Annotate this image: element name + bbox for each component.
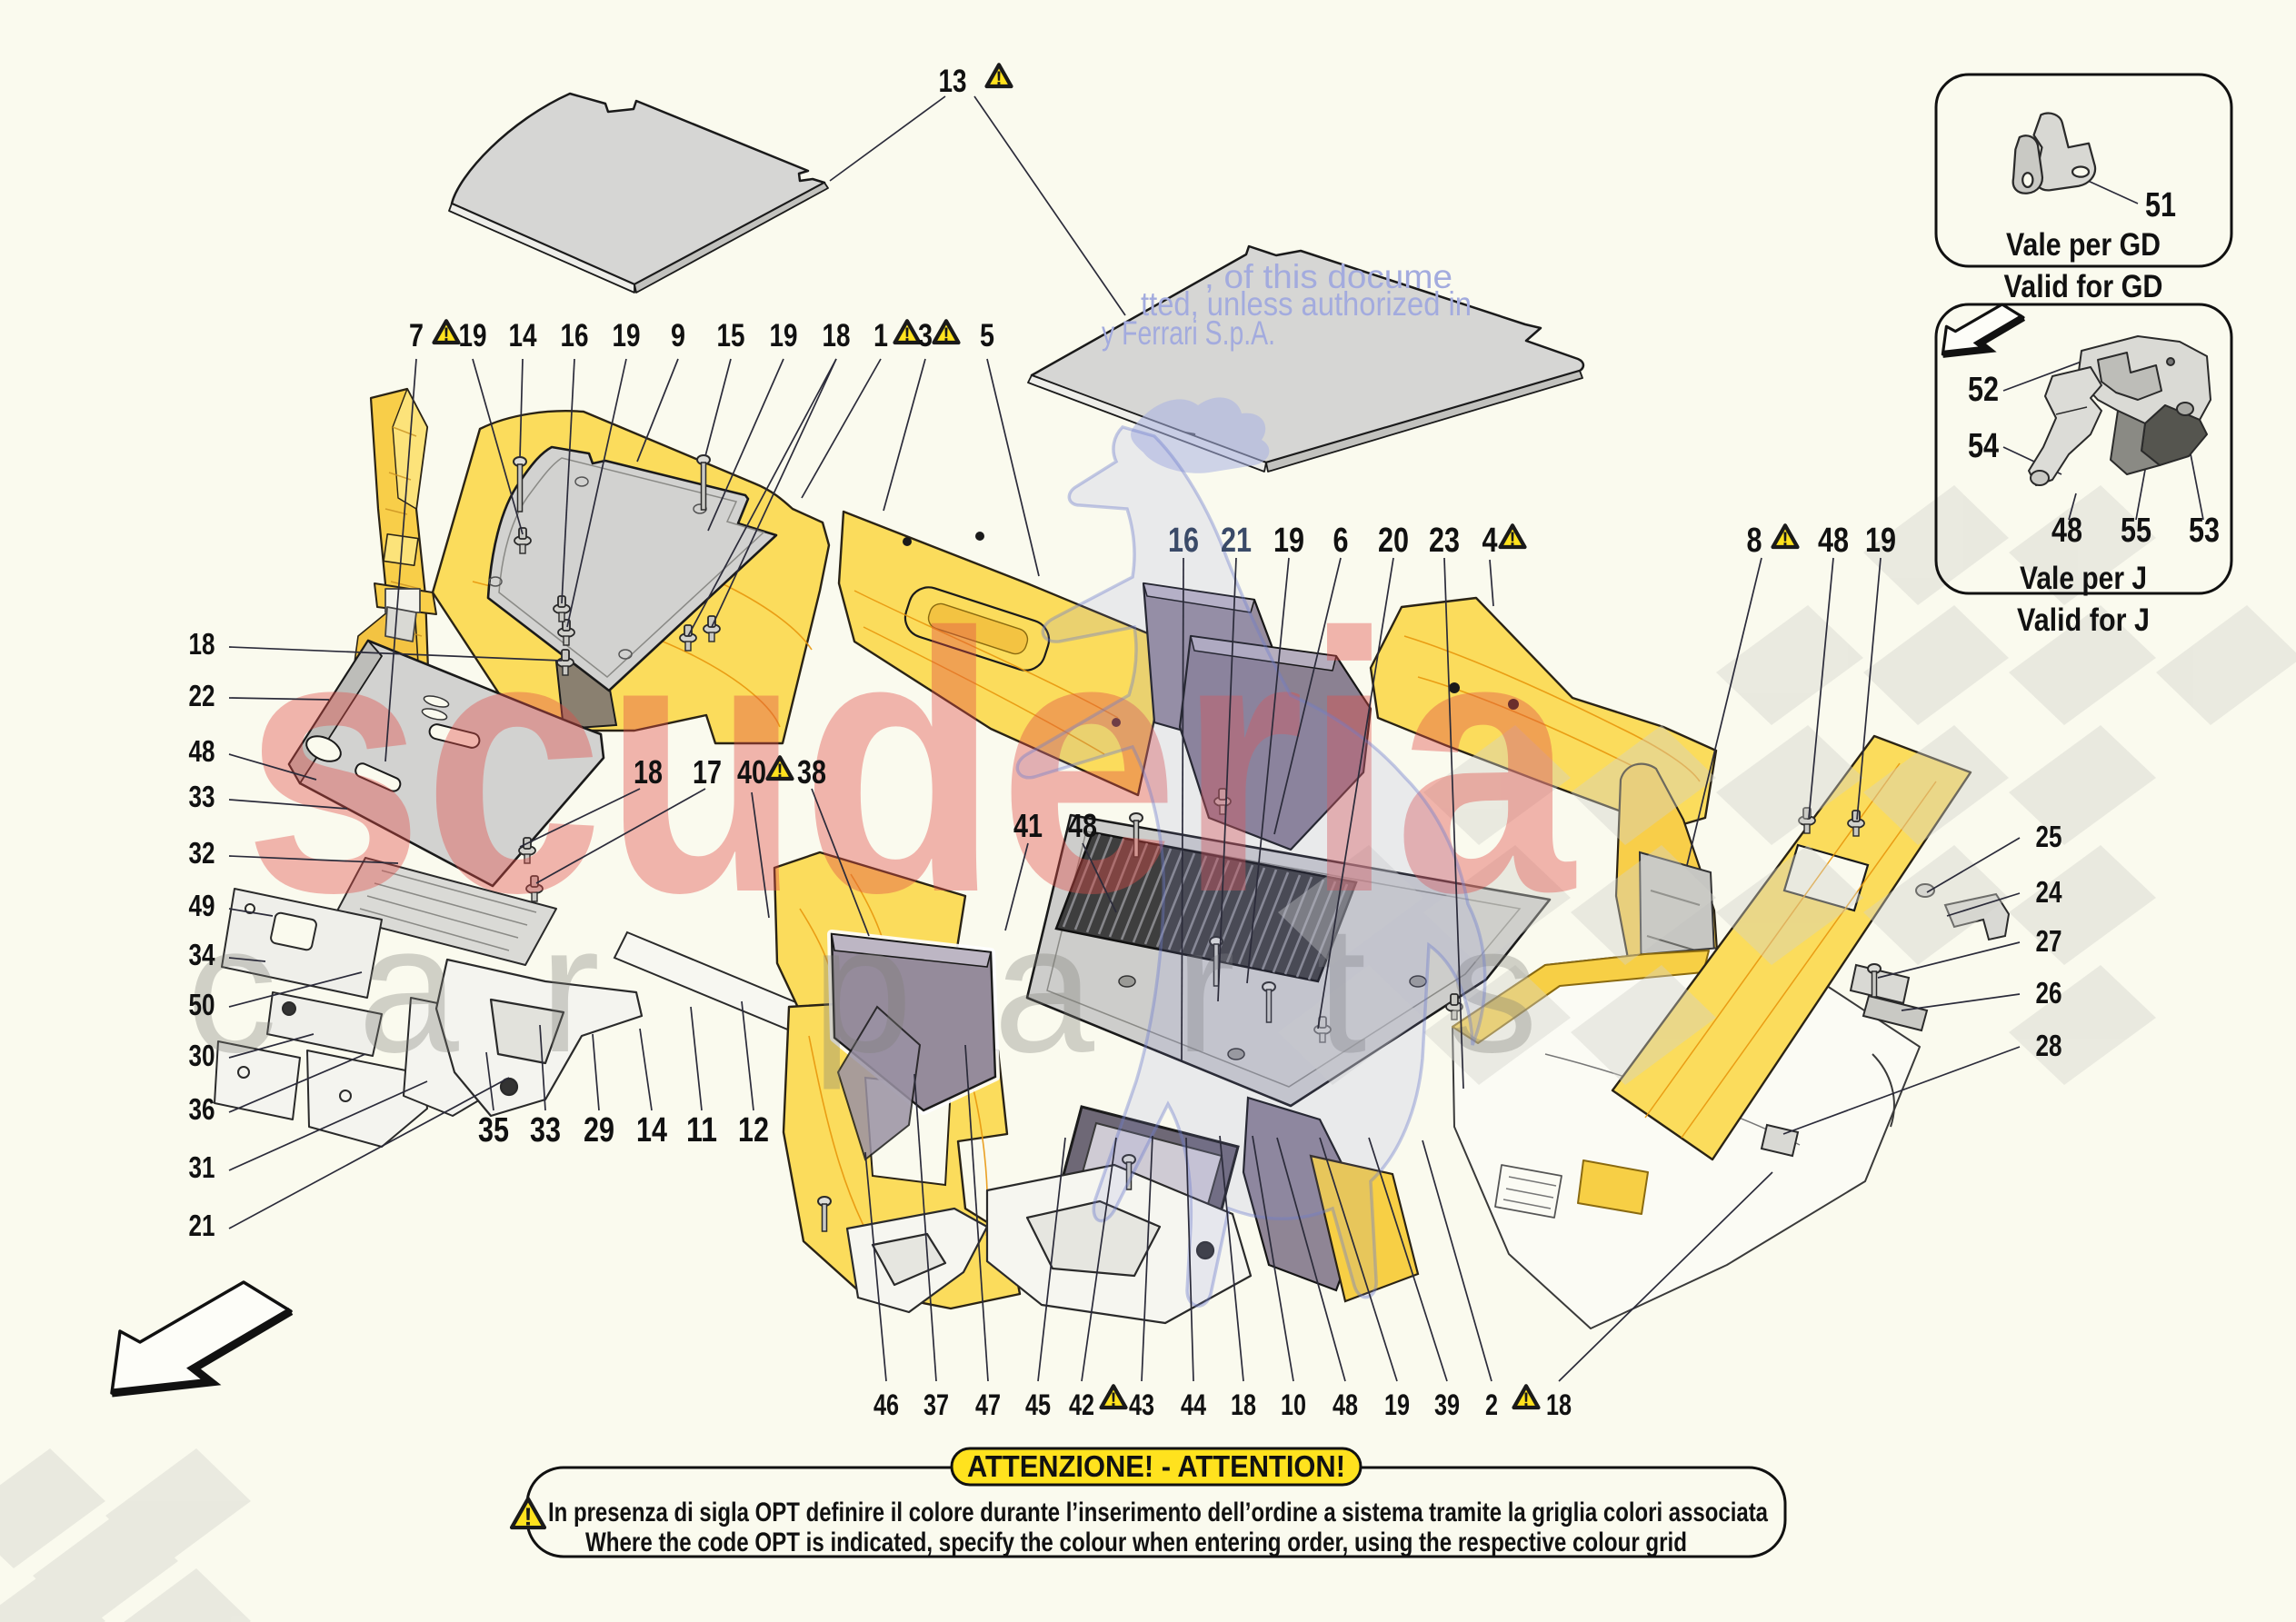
svg-text:9: 9 [671, 318, 685, 353]
svg-text:52: 52 [1968, 371, 1999, 409]
svg-text:37: 37 [923, 1388, 949, 1421]
svg-text:4: 4 [1482, 522, 1498, 560]
svg-text:!: ! [1523, 1389, 1530, 1410]
svg-text:12: 12 [738, 1111, 769, 1149]
svg-text:41: 41 [1013, 807, 1043, 844]
svg-text:Valid for J: Valid for J [2017, 602, 2150, 638]
svg-text:18: 18 [189, 627, 215, 661]
svg-text:!: ! [904, 324, 911, 345]
svg-text:27: 27 [2036, 924, 2062, 958]
svg-text:19: 19 [459, 318, 487, 353]
svg-text:42: 42 [1069, 1388, 1094, 1421]
svg-text:21: 21 [1221, 522, 1252, 560]
svg-text:18: 18 [823, 318, 851, 353]
svg-text:In presenza di sigla OPT defin: In presenza di sigla OPT definire il col… [548, 1498, 1768, 1527]
svg-text:1: 1 [873, 318, 888, 353]
svg-text:39: 39 [1434, 1388, 1460, 1421]
svg-text:18: 18 [634, 753, 663, 791]
svg-text:19: 19 [770, 318, 798, 353]
svg-text:54: 54 [1968, 427, 1999, 465]
svg-text:31: 31 [189, 1150, 215, 1184]
svg-text:!: ! [943, 324, 950, 345]
svg-text:25: 25 [2036, 820, 2062, 853]
svg-text:45: 45 [1025, 1388, 1051, 1421]
svg-text:y Ferrari S.p.A.: y Ferrari S.p.A. [1102, 314, 1275, 352]
svg-text:14: 14 [636, 1111, 667, 1149]
svg-text:15: 15 [717, 318, 745, 353]
svg-text:48: 48 [2051, 512, 2082, 550]
svg-text:Valid for GD: Valid for GD [2004, 269, 2163, 304]
svg-text:!: ! [444, 324, 450, 345]
svg-text:19: 19 [613, 318, 641, 353]
svg-text:43: 43 [1129, 1388, 1154, 1421]
svg-text:29: 29 [584, 1111, 614, 1149]
svg-text:49: 49 [189, 889, 215, 922]
svg-text:5: 5 [980, 318, 994, 353]
svg-text:48: 48 [1818, 522, 1849, 560]
svg-text:19: 19 [1865, 522, 1896, 560]
svg-text:28: 28 [2036, 1029, 2062, 1062]
svg-text:36: 36 [189, 1092, 215, 1126]
svg-text:53: 53 [2189, 512, 2220, 550]
svg-text:44: 44 [1181, 1388, 1206, 1421]
svg-text:34: 34 [189, 938, 216, 971]
svg-text:13: 13 [939, 64, 967, 99]
svg-text:55: 55 [2121, 512, 2151, 550]
svg-text:8: 8 [1747, 522, 1762, 560]
svg-text:!: ! [1782, 529, 1789, 550]
svg-text:30: 30 [189, 1039, 215, 1072]
svg-text:10: 10 [1281, 1388, 1306, 1421]
svg-text:14: 14 [509, 318, 537, 353]
svg-text:19: 19 [1384, 1388, 1410, 1421]
svg-text:48: 48 [1333, 1388, 1358, 1421]
svg-text:33: 33 [189, 780, 215, 813]
svg-text:!: ! [524, 1503, 532, 1531]
svg-text:48: 48 [1068, 807, 1097, 844]
svg-text:7: 7 [409, 318, 424, 353]
svg-text:50: 50 [189, 988, 215, 1021]
svg-text:6: 6 [1333, 522, 1349, 560]
svg-text:33: 33 [530, 1111, 561, 1149]
svg-text:32: 32 [189, 836, 215, 870]
svg-text:16: 16 [1168, 522, 1199, 560]
svg-text:24: 24 [2036, 875, 2063, 909]
svg-text:26: 26 [2036, 976, 2062, 1010]
svg-text:47: 47 [975, 1388, 1001, 1421]
svg-text:!: ! [1111, 1389, 1117, 1410]
svg-text:46: 46 [873, 1388, 899, 1421]
svg-text:11: 11 [686, 1111, 717, 1149]
svg-text:40: 40 [737, 753, 766, 791]
svg-text:21: 21 [189, 1209, 215, 1242]
svg-text:Where the code OPT is indicate: Where the code OPT is indicated, specify… [585, 1527, 1687, 1557]
svg-text:22: 22 [189, 679, 215, 712]
svg-text:51: 51 [2145, 186, 2176, 224]
svg-text:2: 2 [1485, 1388, 1498, 1421]
svg-text:19: 19 [1273, 522, 1304, 560]
svg-text:16: 16 [561, 318, 589, 353]
svg-text:20: 20 [1378, 522, 1409, 560]
svg-text:35: 35 [478, 1111, 509, 1149]
svg-text:17: 17 [693, 753, 722, 791]
svg-text:!: ! [996, 68, 1003, 89]
svg-text:!: ! [1510, 529, 1516, 550]
svg-text:Vale per J: Vale per J [2020, 561, 2147, 596]
svg-text:18: 18 [1546, 1388, 1572, 1421]
svg-text:48: 48 [189, 734, 215, 768]
svg-text:Vale per GD: Vale per GD [2006, 227, 2161, 263]
svg-text:3: 3 [918, 318, 933, 353]
svg-text:18: 18 [1231, 1388, 1256, 1421]
svg-text:ATTENZIONE! - ATTENTION!: ATTENZIONE! - ATTENTION! [967, 1449, 1345, 1483]
svg-text:!: ! [777, 761, 784, 781]
svg-text:38: 38 [797, 753, 826, 791]
svg-text:23: 23 [1429, 522, 1460, 560]
